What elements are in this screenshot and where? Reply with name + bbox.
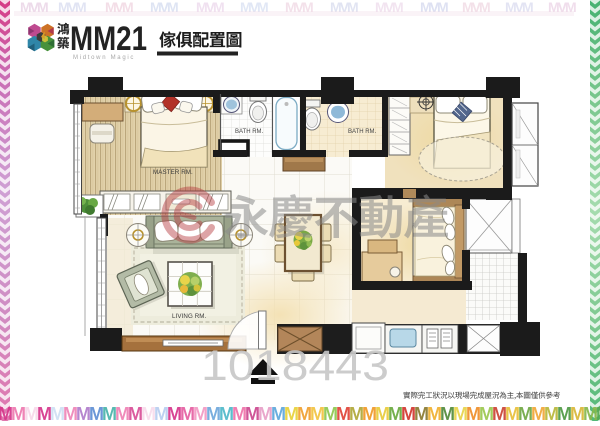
svg-text:1018443: 1018443 [201, 342, 389, 390]
svg-text:MASTER RM.: MASTER RM. [153, 169, 193, 176]
svg-text:M: M [596, 404, 600, 421]
svg-text:BATH RM.: BATH RM. [348, 129, 377, 135]
svg-text:BATH RM.: BATH RM. [235, 129, 264, 135]
svg-text:LIVING RM.: LIVING RM. [172, 313, 207, 320]
svg-text:Midtown Magic: Midtown Magic [73, 55, 135, 61]
svg-text:MM21: MM21 [70, 20, 147, 58]
